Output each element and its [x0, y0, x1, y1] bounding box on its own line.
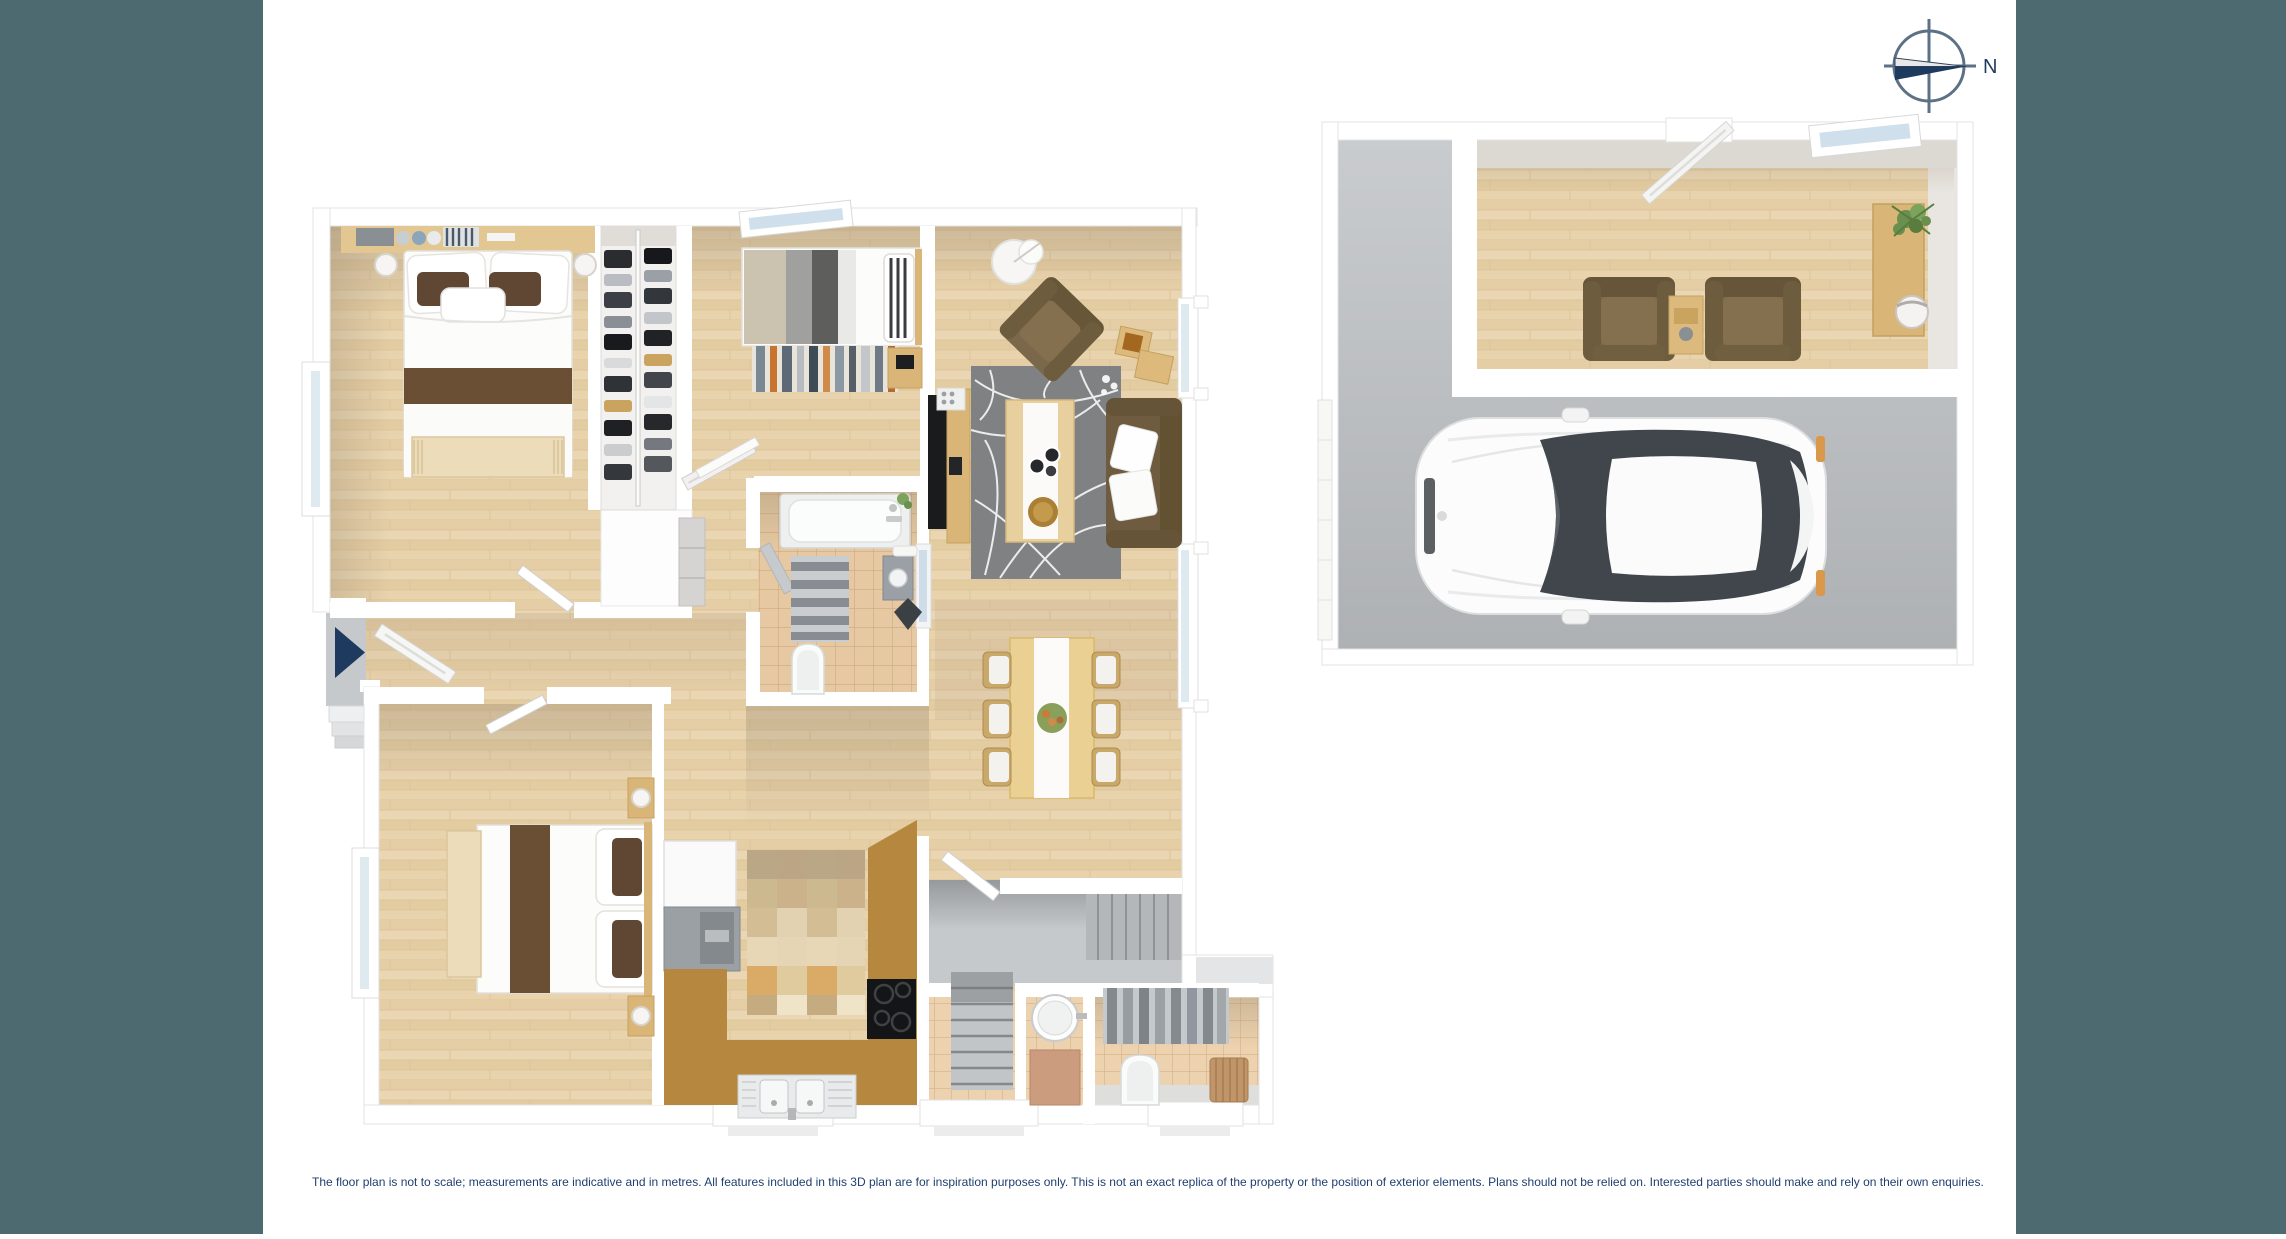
- svg-text:The floor plan is not to scale: The floor plan is not to scale; measurem…: [312, 1175, 1984, 1189]
- svg-text:N: N: [1983, 56, 1997, 78]
